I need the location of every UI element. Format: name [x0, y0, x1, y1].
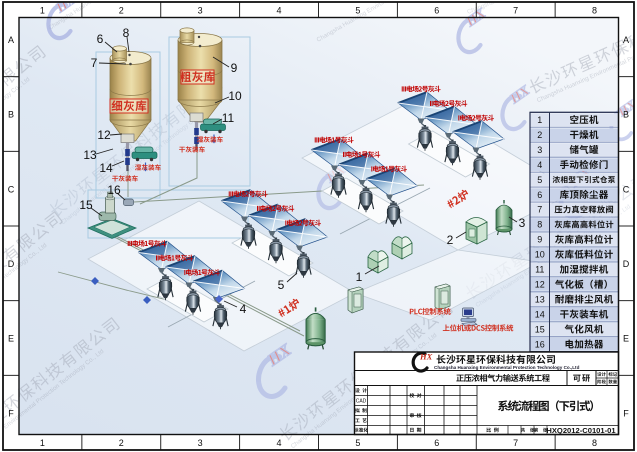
svg-text:15: 15 [535, 324, 545, 334]
svg-text:13: 13 [535, 295, 545, 305]
svg-text:CAD: CAD [356, 398, 367, 404]
svg-text:8: 8 [123, 26, 130, 40]
svg-text:4: 4 [277, 6, 282, 16]
svg-text:3: 3 [537, 145, 542, 155]
svg-text:1: 1 [40, 6, 45, 16]
svg-text:8: 8 [537, 220, 542, 230]
svg-text:4: 4 [277, 438, 282, 448]
svg-text:13: 13 [83, 148, 97, 162]
svg-text:E: E [623, 334, 629, 344]
svg-text:9: 9 [231, 61, 238, 75]
svg-text:7: 7 [513, 6, 518, 16]
svg-text:3: 3 [198, 6, 203, 16]
svg-text:11: 11 [535, 265, 544, 275]
svg-text:1: 1 [537, 115, 542, 125]
svg-text:C: C [623, 184, 630, 194]
svg-text:15: 15 [79, 198, 93, 212]
svg-text:E: E [8, 334, 14, 344]
svg-text:C: C [8, 184, 15, 194]
svg-text:F: F [623, 408, 629, 418]
svg-text:B: B [8, 110, 14, 120]
svg-text:2: 2 [119, 6, 124, 16]
svg-text:14: 14 [535, 309, 545, 319]
svg-text:4: 4 [537, 160, 542, 170]
svg-text:5: 5 [355, 438, 360, 448]
svg-text:F: F [8, 408, 14, 418]
svg-text:6: 6 [434, 438, 439, 448]
svg-text:HX: HX [419, 352, 433, 362]
svg-text:16: 16 [107, 183, 121, 197]
svg-text:6: 6 [97, 32, 104, 46]
svg-text:1: 1 [356, 270, 363, 284]
svg-text:6: 6 [537, 190, 542, 200]
svg-text:7: 7 [513, 438, 518, 448]
svg-text:Changsha Huanxing Environmenta: Changsha Huanxing Environmental Protecti… [434, 365, 580, 370]
svg-text:12: 12 [97, 128, 111, 142]
svg-text:6: 6 [434, 6, 439, 16]
svg-text:HXQ2012-C0101-01: HXQ2012-C0101-01 [546, 426, 616, 435]
svg-text:D: D [8, 259, 15, 269]
svg-text:9: 9 [537, 235, 542, 245]
svg-text:10: 10 [535, 250, 545, 260]
svg-text:B: B [623, 110, 629, 120]
svg-text:8: 8 [592, 438, 597, 448]
svg-text:D: D [623, 259, 630, 269]
svg-text:3: 3 [519, 216, 526, 230]
svg-text:7: 7 [91, 56, 98, 70]
svg-text:2: 2 [119, 438, 124, 448]
svg-text:10: 10 [228, 89, 242, 103]
svg-text:12: 12 [535, 280, 545, 290]
svg-text:14: 14 [99, 161, 113, 175]
svg-text:16: 16 [535, 339, 545, 349]
svg-text:5: 5 [278, 278, 285, 292]
svg-text:A: A [623, 35, 629, 45]
svg-text:5: 5 [355, 6, 360, 16]
svg-text:7: 7 [537, 205, 542, 215]
svg-text:4: 4 [240, 302, 247, 316]
svg-text:5: 5 [537, 175, 542, 185]
svg-text:A: A [8, 35, 14, 45]
svg-text:2: 2 [537, 130, 542, 140]
svg-text:8: 8 [592, 6, 597, 16]
svg-text:2: 2 [447, 233, 454, 247]
svg-text:1: 1 [40, 438, 45, 448]
svg-text:11: 11 [222, 111, 235, 125]
svg-text:3: 3 [198, 438, 203, 448]
